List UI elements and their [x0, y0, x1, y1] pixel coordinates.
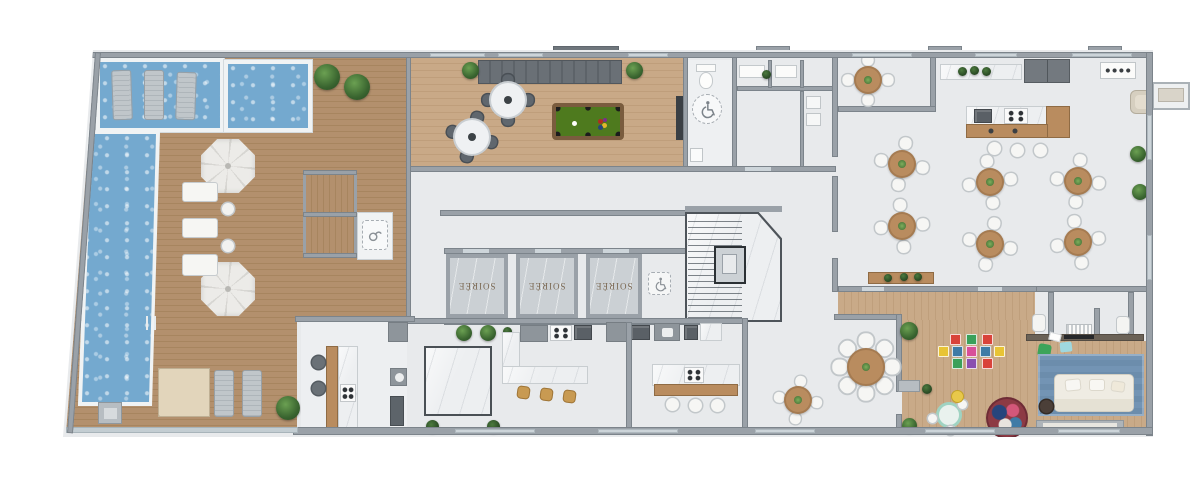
window [1058, 429, 1120, 433]
in-pool-lounger [175, 72, 197, 121]
hopscotch-tile [966, 334, 977, 345]
hopscotch-tile [952, 358, 963, 369]
table-centerpiece-plant [862, 363, 870, 371]
door-opening [745, 167, 771, 171]
hopscotch-tile [982, 358, 993, 369]
island-wood-base [326, 346, 338, 428]
bar-stool [563, 390, 575, 402]
kitchen-counter [940, 64, 1022, 80]
marble-floor-inlay [424, 346, 492, 416]
small-plant [958, 67, 967, 76]
deck-lounger [182, 218, 218, 238]
cafe-table [770, 372, 826, 428]
games-table [444, 109, 500, 165]
nook-partition [1094, 308, 1100, 336]
small-plant [922, 384, 932, 394]
kitchen-sink [630, 325, 650, 340]
wall [732, 57, 737, 172]
potted-plant [900, 322, 918, 340]
sink-basin [395, 373, 404, 382]
pool-ladder [146, 316, 156, 330]
stair-railing [714, 246, 746, 284]
plunge-pool [228, 64, 308, 128]
sofa [1054, 374, 1134, 412]
small-plant [762, 70, 771, 79]
kitchen-cabinet [520, 325, 548, 342]
billiard-ball [603, 118, 607, 122]
double-fridge [1024, 59, 1070, 83]
kitchen-sink-cabinet [390, 368, 407, 386]
elevator-door [535, 249, 561, 253]
wall [440, 210, 702, 216]
elevator-brand-label: SOIRÉE [458, 281, 496, 291]
kitchen-sink [684, 325, 698, 340]
window [430, 53, 485, 57]
lap-pool [82, 134, 156, 402]
island-sink [974, 109, 992, 123]
window [852, 53, 912, 57]
in-pool-lounger [111, 70, 133, 121]
group-dining-table [838, 339, 894, 395]
billiards-table [552, 103, 624, 140]
potted-palm [276, 396, 300, 420]
deck-lounger [182, 182, 218, 202]
kitchen-counter [700, 323, 722, 341]
side-table [222, 240, 234, 252]
dining-table [962, 216, 1018, 272]
stair-edge [303, 170, 357, 175]
bar-stool [666, 398, 679, 411]
wall [685, 206, 782, 212]
elevator-cab: SOIRÉE [446, 254, 508, 318]
hopscotch-tile [980, 346, 991, 357]
island-bar [966, 124, 1048, 138]
deck-lounger-gray [242, 370, 262, 417]
washroom-vanity [739, 65, 765, 78]
floor-pouf-teal [1060, 341, 1073, 352]
small-plant [970, 66, 979, 75]
door-opening [862, 287, 884, 291]
kitchen-cabinet [606, 322, 628, 342]
cooktop [340, 384, 356, 402]
shower-icon [362, 220, 388, 250]
wall [406, 318, 746, 324]
table-centerpiece-plant [1074, 238, 1082, 246]
wall [800, 91, 804, 169]
table-centerpiece-plant [794, 396, 802, 404]
sofa-cushion [1064, 378, 1081, 392]
sofa-cushion [1110, 380, 1125, 393]
window [498, 53, 543, 57]
island-wood-base [1046, 106, 1070, 138]
wall [832, 176, 838, 232]
wall [800, 60, 804, 88]
dining-table [1050, 214, 1106, 270]
wall [406, 166, 836, 172]
elevator-cab: SOIRÉE [516, 254, 578, 318]
island-wood-base [654, 384, 738, 396]
window [1072, 53, 1132, 57]
window [455, 429, 535, 433]
window [628, 53, 668, 57]
potted-plant [462, 62, 479, 79]
kids-pouf [952, 391, 963, 402]
laundry-unit [806, 113, 821, 126]
deck-lounger [182, 254, 218, 276]
kitchen-sink [574, 325, 592, 340]
deck-glass-rail [66, 427, 298, 433]
toilet-bowl [699, 72, 713, 89]
nook-partition [1048, 292, 1054, 336]
cue-ball [572, 121, 577, 126]
kitchen-cabinet [654, 323, 680, 341]
window [1147, 115, 1152, 160]
window [1147, 235, 1152, 280]
bar-stool [312, 382, 325, 395]
small-plant [982, 67, 991, 76]
floor-plan: SOIRÉE SOIRÉE SOIRÉE [0, 0, 1200, 486]
dining-table [874, 198, 930, 254]
cabana [158, 368, 210, 417]
bar-stool [540, 388, 552, 400]
dining-table [840, 52, 896, 108]
hopscotch-tile [966, 358, 977, 369]
hopscotch-tile [952, 346, 963, 357]
potted-plant [626, 62, 643, 79]
floor-vent [898, 380, 920, 392]
fridge-divider [1047, 60, 1048, 82]
table-centerpiece [468, 133, 476, 141]
window [975, 53, 1017, 57]
elevator-door [463, 249, 489, 253]
table-centerpiece-plant [1074, 177, 1082, 185]
window [925, 429, 995, 433]
potted-plant [480, 325, 496, 341]
hopscotch-tile [994, 346, 1005, 357]
side-table-dark [1040, 400, 1053, 413]
wall [406, 57, 411, 318]
desk-chair [1116, 316, 1130, 334]
bar-stool [312, 356, 325, 369]
table-centerpiece-plant [898, 160, 906, 168]
wheelchair-icon [648, 272, 671, 295]
bbq-range [1100, 62, 1136, 79]
side-table [222, 203, 234, 215]
tall-appliance [390, 396, 404, 426]
hopscotch-tile [982, 334, 993, 345]
kids-chair [928, 414, 937, 423]
bar-stool [1034, 144, 1047, 157]
table-centerpiece-plant [986, 178, 994, 186]
balcony-ledge [1152, 82, 1190, 110]
dining-table [874, 136, 930, 192]
wc-sink [690, 148, 703, 162]
cooktop [550, 325, 572, 341]
exterior-wall-south [293, 427, 1153, 435]
dining-table [1050, 153, 1106, 209]
elevator-cab: SOIRÉE [586, 254, 642, 318]
table-centerpiece [504, 96, 512, 104]
wall [737, 86, 835, 91]
elevator-brand-label: SOIRÉE [595, 281, 633, 291]
table-centerpiece-plant [864, 76, 872, 84]
washroom-vanity [775, 65, 797, 78]
sink-basin [662, 328, 673, 337]
cooktop [1004, 108, 1028, 124]
ledge-bench [1158, 88, 1184, 102]
dining-table [962, 154, 1018, 210]
potted-plant [456, 325, 472, 341]
elevator-brand-label: SOIRÉE [528, 281, 566, 291]
hopscotch-tile [938, 346, 949, 357]
window [755, 429, 815, 433]
bar-stool [689, 399, 702, 412]
potted-palm [344, 74, 370, 100]
sofa-back [1055, 399, 1133, 411]
deck-lounger-gray [214, 370, 234, 417]
tv-panel [676, 96, 683, 140]
desk-chair [1032, 314, 1046, 332]
hopscotch-tile [950, 334, 961, 345]
wheelchair-icon [692, 94, 722, 124]
cooktop [684, 367, 704, 383]
stair-edge [303, 212, 357, 217]
stair-edge [303, 253, 357, 258]
equipment-box-lid [104, 408, 117, 419]
table-centerpiece-plant [986, 240, 994, 248]
laundry-unit [806, 96, 821, 109]
door-opening [978, 287, 1002, 291]
toilet-tank [696, 64, 716, 72]
wall [742, 318, 748, 434]
small-plant [884, 274, 892, 282]
pool-equipment-box [98, 402, 122, 424]
tv-screen [1064, 335, 1094, 339]
potted-palm [314, 64, 340, 90]
building-footprint: SOIRÉE SOIRÉE SOIRÉE [0, 0, 1200, 486]
small-plant [900, 273, 908, 281]
bar-stool [517, 386, 529, 398]
wall [683, 57, 688, 172]
hopscotch-tile [966, 346, 977, 357]
sofa-cushion [1089, 379, 1105, 391]
table-centerpiece-plant [898, 222, 906, 230]
island-counter [502, 366, 588, 384]
potted-plant [1130, 146, 1146, 162]
wall [930, 57, 936, 109]
window [598, 429, 678, 433]
elevator-door [603, 249, 629, 253]
stair-landing [722, 254, 737, 274]
bar-stool [711, 399, 724, 412]
kitchen-cabinet [388, 322, 408, 342]
wall [626, 322, 632, 434]
small-plant [914, 273, 922, 281]
in-pool-lounger [144, 70, 164, 120]
billiard-ball [598, 125, 603, 130]
wall [834, 314, 900, 320]
